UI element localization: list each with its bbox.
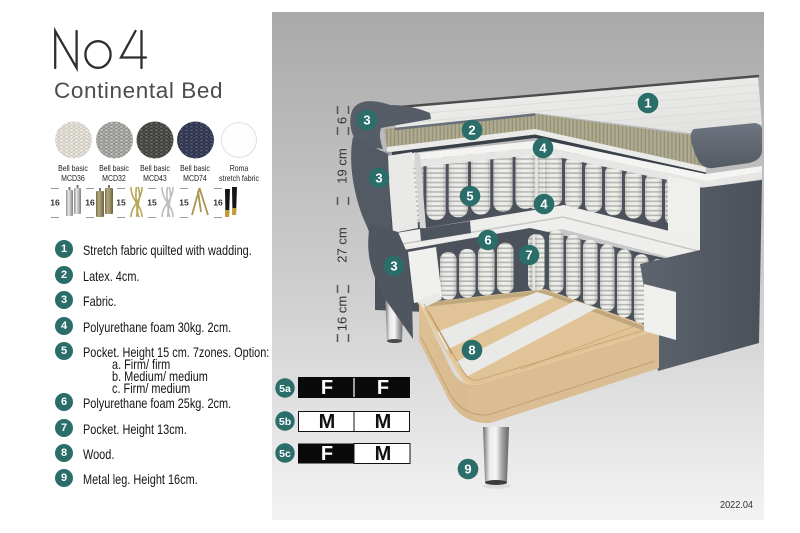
svg-text:3: 3 [375, 171, 382, 186]
svg-text:27 cm: 27 cm [335, 227, 350, 262]
svg-text:16 cm: 16 cm [335, 296, 350, 331]
svg-text:15: 15 [116, 198, 126, 208]
svg-text:8: 8 [468, 343, 475, 358]
svg-text:4: 4 [540, 197, 548, 212]
svg-text:15: 15 [179, 198, 189, 208]
svg-text:M: M [375, 411, 392, 433]
svg-text:6: 6 [484, 233, 491, 248]
svg-text:5a: 5a [279, 383, 291, 395]
svg-text:5b: 5b [279, 416, 291, 428]
svg-text:16: 16 [50, 198, 60, 208]
svg-text:15: 15 [147, 198, 157, 208]
svg-text:6: 6 [335, 117, 350, 124]
svg-text:9: 9 [464, 462, 471, 477]
svg-text:7: 7 [525, 248, 532, 263]
svg-text:5: 5 [466, 189, 473, 204]
svg-text:5c: 5c [279, 448, 291, 460]
svg-text:M: M [319, 411, 336, 433]
svg-text:M: M [375, 443, 392, 465]
svg-text:19 cm: 19 cm [335, 148, 350, 183]
svg-text:1: 1 [644, 96, 651, 111]
svg-text:4: 4 [539, 141, 547, 156]
svg-text:16: 16 [85, 198, 95, 208]
svg-text:2022.04: 2022.04 [720, 499, 753, 511]
svg-text:F: F [321, 377, 333, 399]
svg-text:3: 3 [390, 259, 397, 274]
svg-text:F: F [377, 377, 389, 399]
svg-text:3: 3 [363, 113, 370, 128]
svg-text:16: 16 [213, 198, 223, 208]
svg-text:2: 2 [468, 123, 475, 138]
svg-text:F: F [321, 443, 333, 465]
